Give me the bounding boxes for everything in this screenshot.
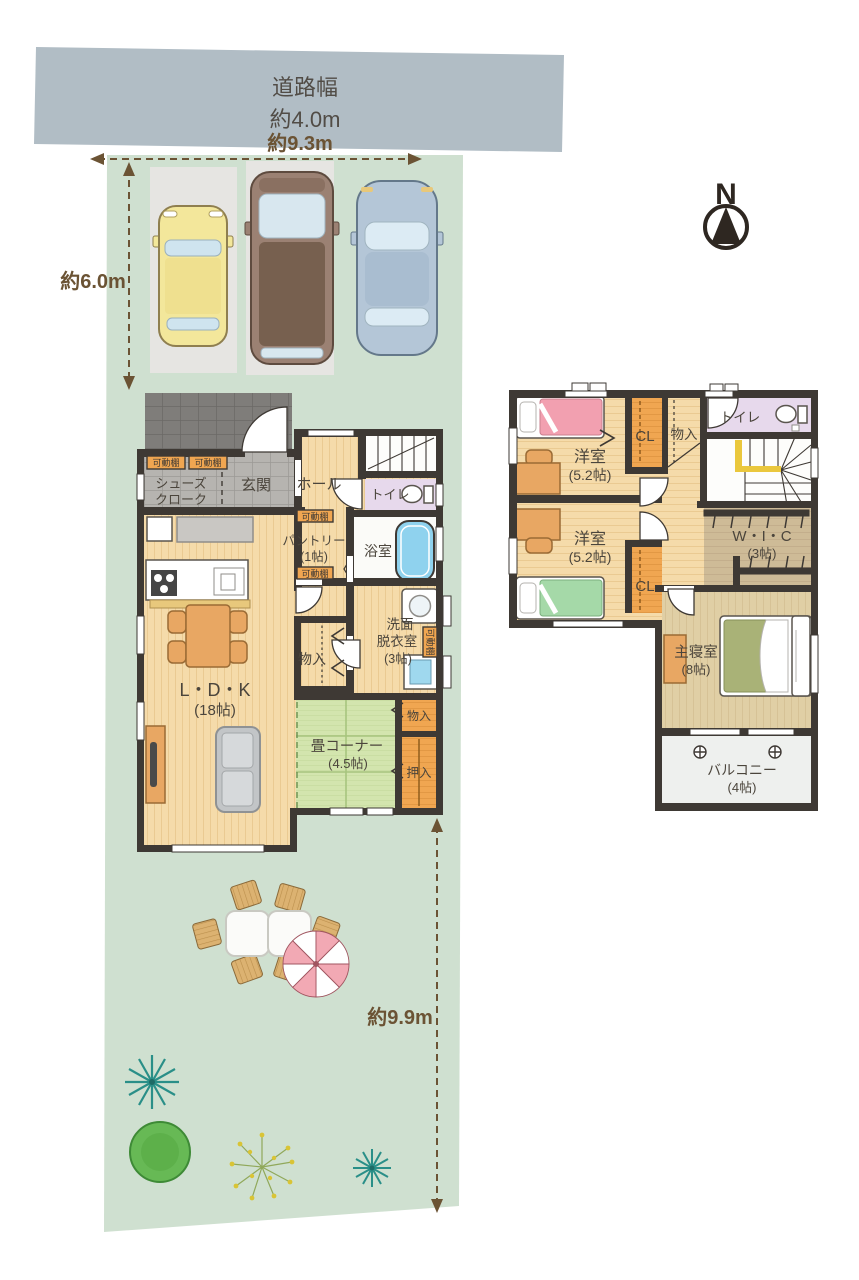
- storage2f-label: 物入: [671, 427, 699, 442]
- sofa: [216, 727, 260, 812]
- floorplan-page: 道路幅 約4.0m 約9.3m 約6.0m 約9.9m N: [0, 0, 859, 1280]
- bed-master: [720, 616, 812, 696]
- movable-shelf-badge: 可動棚: [194, 457, 221, 468]
- north-arrow-icon: N: [705, 178, 747, 248]
- wic-label-1: W・I・C: [732, 528, 791, 545]
- dim-frontage: 約9.3m: [267, 131, 333, 155]
- bed-pink: [516, 396, 604, 438]
- balcony-label-2: (4帖): [728, 780, 757, 795]
- shoes-closet-label-2: クローク: [155, 492, 207, 507]
- hall-label: ホール: [296, 476, 341, 493]
- shoes-closet-label-1: シューズ: [155, 476, 206, 491]
- dim-west-depth: 約6.0m: [60, 269, 126, 293]
- movable-shelf-badge: 可動棚: [152, 457, 179, 468]
- dim-east-depth: 約9.9m: [367, 1005, 433, 1029]
- wic-label-2: (3帖): [748, 546, 777, 561]
- bush-icon: [130, 1122, 190, 1182]
- kitchen-unit: [146, 517, 253, 608]
- ldk-label-1: L・D・K: [179, 680, 250, 700]
- toilet2-label: トイレ: [720, 410, 761, 425]
- tatami-label-1: 畳コーナー: [311, 739, 384, 755]
- bed-green: [516, 577, 604, 619]
- bath-label: 浴室: [364, 543, 392, 559]
- tatami-storage-label: 物入: [407, 709, 431, 723]
- road-label-1: 道路幅: [272, 75, 338, 100]
- oshiire-label: 押入: [406, 766, 432, 780]
- closet2-label: CL: [635, 578, 654, 595]
- movable-shelf-badge: 可動棚: [301, 511, 328, 522]
- car-brown: [245, 172, 339, 364]
- tatami-label-2: (4.5帖): [328, 756, 368, 771]
- movable-shelf-badge: 可動棚: [425, 628, 436, 655]
- washroom-label-3: (3帖): [384, 651, 412, 666]
- movable-shelf-badge: 可動棚: [301, 568, 328, 579]
- washroom-label-2: 脱衣室: [377, 633, 418, 649]
- master-label-2: (8帖): [682, 662, 711, 677]
- toilet1-label: トイレ: [370, 487, 409, 502]
- floorplan-graphic: 道路幅 約4.0m 約9.3m 約6.0m 約9.9m N: [0, 0, 859, 1280]
- parking-area: [150, 161, 443, 375]
- bedroom2-label-2: (5.2帖): [569, 549, 612, 565]
- bathtub: [396, 521, 434, 581]
- storage1f-label: 物入: [298, 651, 326, 667]
- pantry-label-2: (1帖): [300, 549, 328, 564]
- bedroom2-label-1: 洋室: [574, 530, 606, 548]
- genkan-label: 玄関: [241, 477, 271, 494]
- ldk-label-2: (18帖): [194, 702, 236, 719]
- closet1-label: CL: [635, 428, 654, 445]
- floor2-plan: 洋室 (5.2帖) 洋室 (5.2帖) CL CL 物入 トイレ W・I・C (…: [509, 383, 818, 811]
- bedroom1-label-2: (5.2帖): [569, 467, 612, 483]
- floor1-plan: 可動棚 可動棚 可動棚 可動棚 可動棚 シューズ クローク 玄関 ホール トイレ…: [137, 393, 451, 852]
- balcony-label-1: バルコニー: [707, 762, 777, 778]
- car-blue: [351, 181, 443, 355]
- stairs-1f: [366, 436, 436, 471]
- washroom-label-1: 洗面: [387, 617, 414, 632]
- pantry-label-1: パントリー: [282, 534, 345, 548]
- stairs-2f: [707, 437, 811, 505]
- car-yellow: [153, 206, 233, 346]
- tv-board: [146, 726, 165, 803]
- bedroom1-label-1: 洋室: [574, 448, 606, 466]
- parasol-icon: [283, 931, 349, 997]
- master-label-1: 主寝室: [674, 643, 718, 661]
- road-label-2: 約4.0m: [270, 107, 341, 132]
